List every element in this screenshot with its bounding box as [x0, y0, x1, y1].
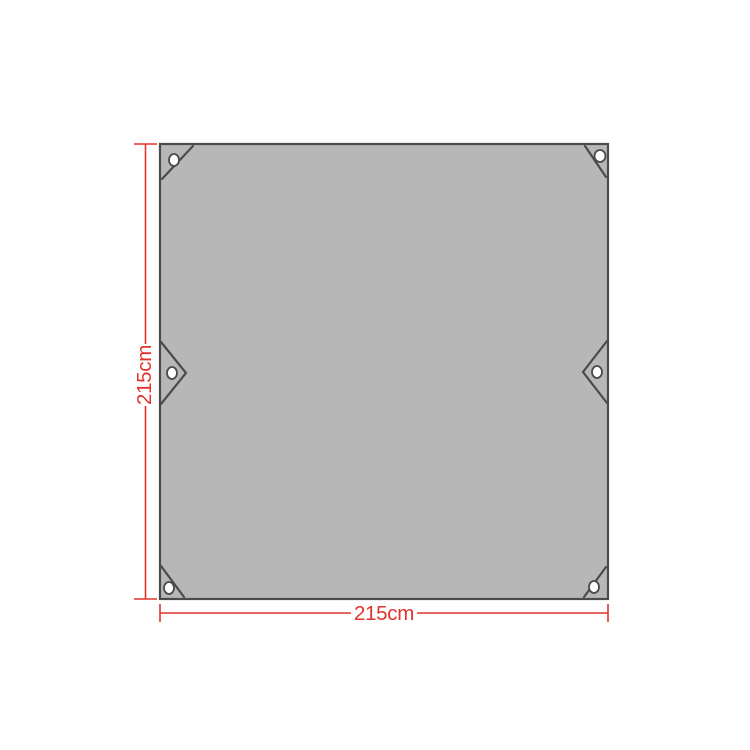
- grommet-icon-top-right: [595, 150, 606, 162]
- grommet-icon-bottom-right: [589, 581, 599, 593]
- grommet-icon-right-tab: [592, 366, 602, 378]
- grommet-icon-top-left: [169, 154, 179, 166]
- height-label: 215cm: [133, 345, 156, 405]
- grommet-icon-bottom-left: [164, 582, 174, 594]
- grommet-icon-left-tab: [167, 367, 177, 379]
- tarp-dimension-diagram: 215cm 215cm: [0, 0, 750, 750]
- tarp-group: [160, 144, 608, 599]
- product-image: 215cm 215cm: [0, 0, 750, 750]
- height-dimension: 215cm: [133, 144, 157, 599]
- tarp-panel: [160, 144, 608, 599]
- width-label: 215cm: [354, 602, 414, 625]
- width-dimension: 215cm: [160, 602, 608, 625]
